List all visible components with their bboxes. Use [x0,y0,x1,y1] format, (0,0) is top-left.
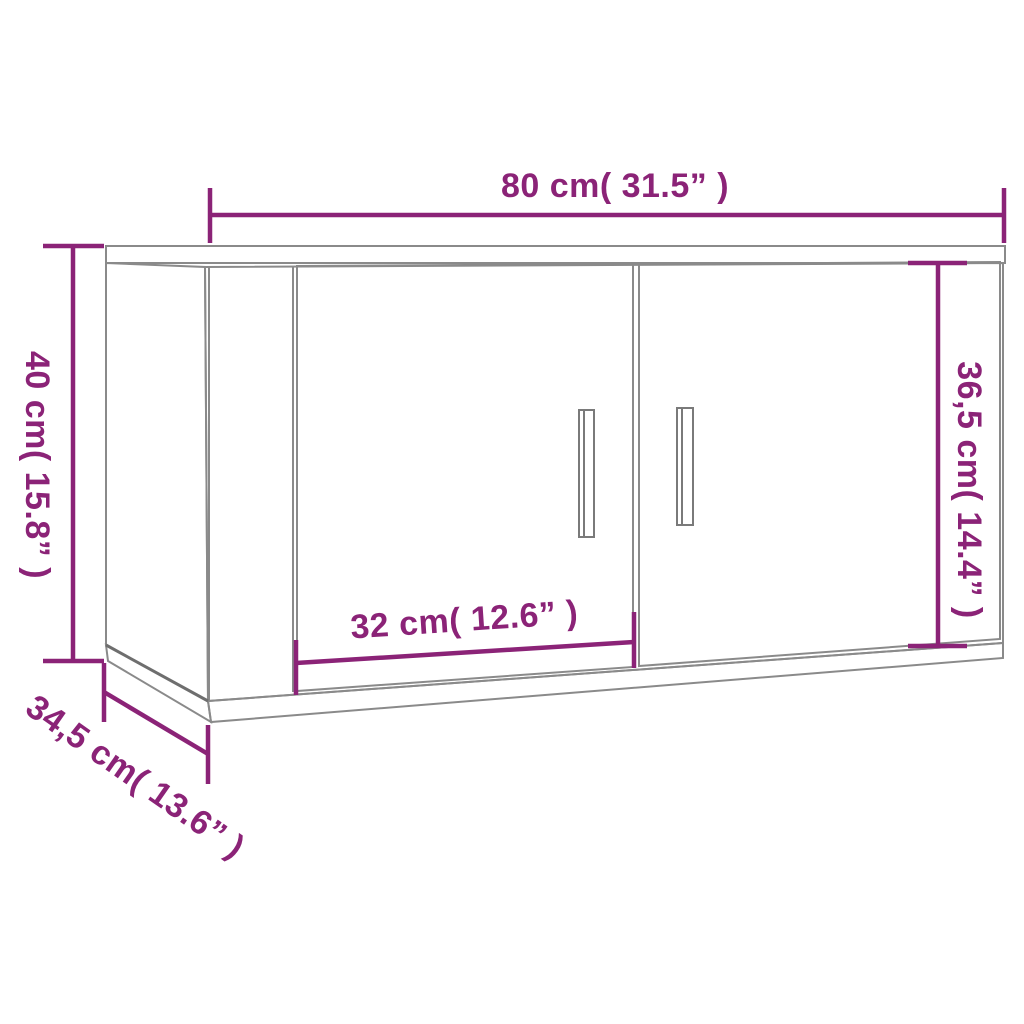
door-handles [579,408,693,537]
cabinet-base-front [208,643,1003,722]
cabinet-front-face [205,263,1003,701]
dimension-diagram: 80 cm( 31.5” ) 40 cm( 15.8” ) 36,5 cm( 1… [0,0,1024,1024]
cabinet-diagram-svg: 80 cm( 31.5” ) 40 cm( 15.8” ) 36,5 cm( 1… [0,0,1024,1024]
right-door-handle [677,408,693,525]
cabinet-top-panel [106,246,1005,263]
dim-depth-label: 34,5 cm( 13.6” ) [19,688,252,867]
dim-door-height-label: 36,5 cm( 14.4” ) [950,361,988,618]
cabinet-base-left [106,645,211,722]
dim-door-width-label: 32 cm( 12.6” ) [349,594,579,647]
dim-height-label: 40 cm( 15.8” ) [18,351,56,579]
cabinet-left-side [106,263,208,701]
left-door-handle [579,410,594,537]
cabinet-outline [106,246,1005,722]
dim-width-label: 80 cm( 31.5” ) [501,167,729,205]
bottom-left-edge-shadow [106,645,208,701]
